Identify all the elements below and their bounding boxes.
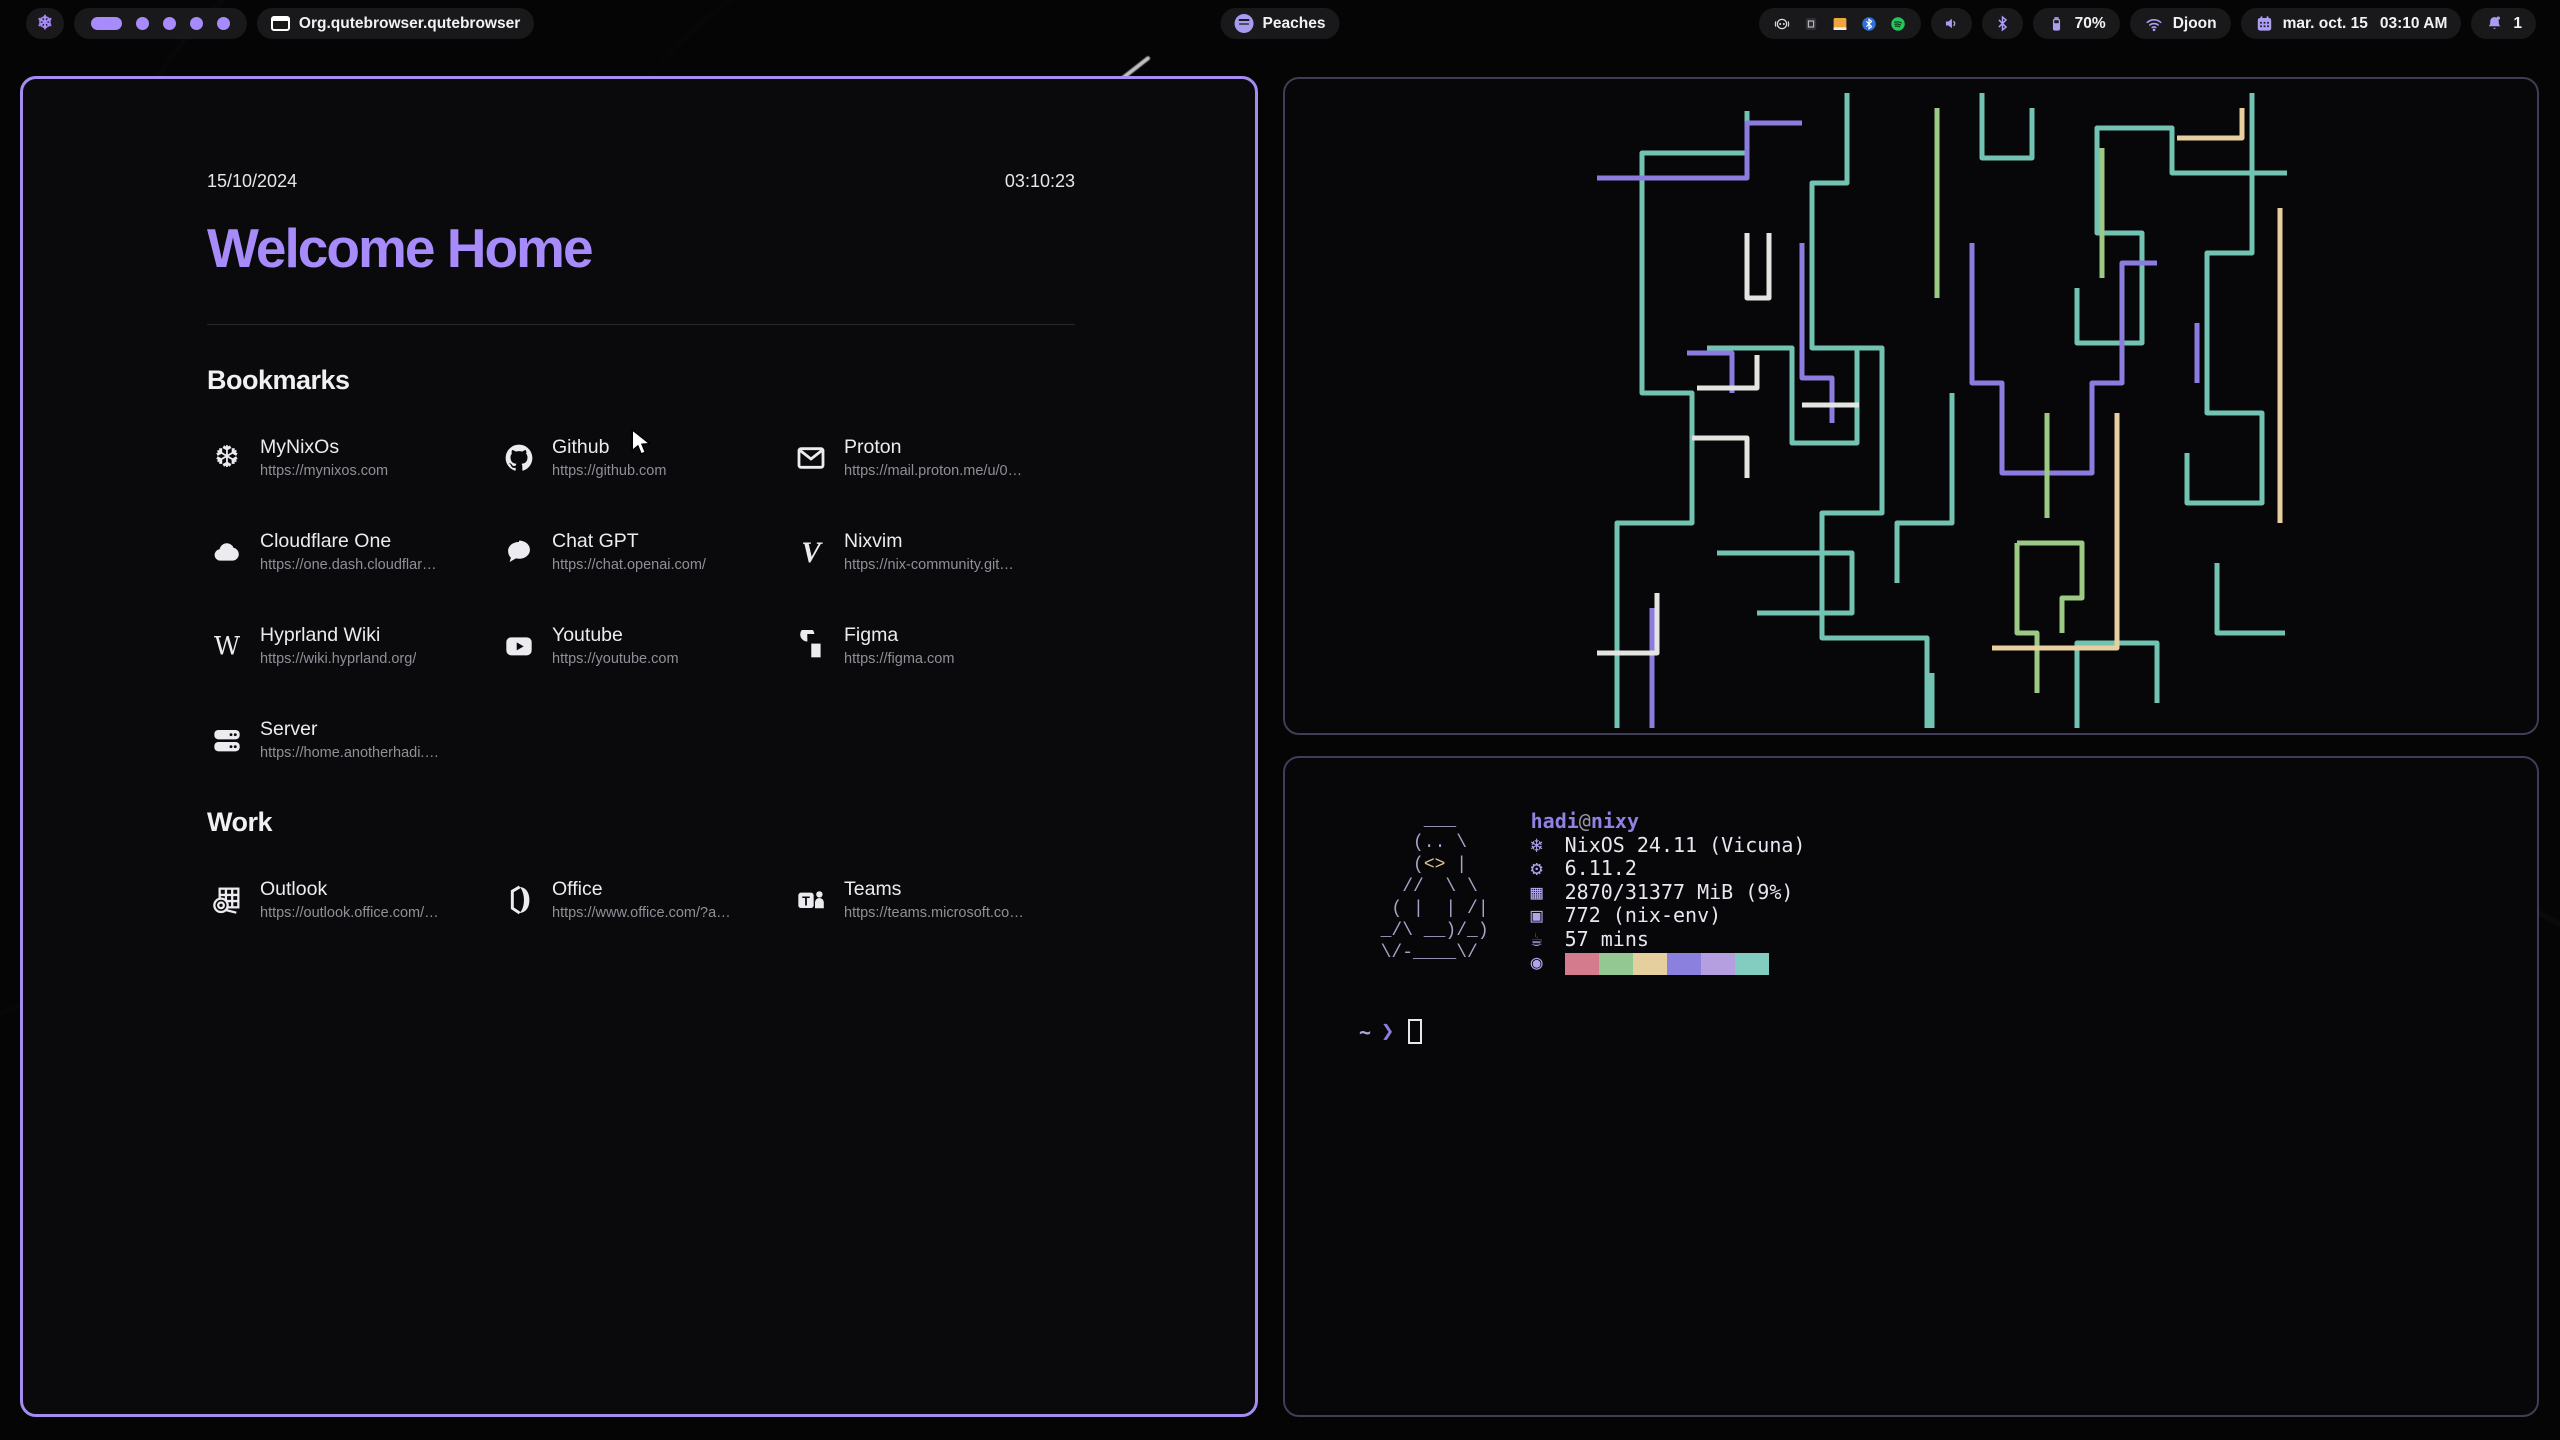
bookmark-title: Hyprland Wiki <box>260 624 416 647</box>
bookmark-url: https://nix-community.git… <box>844 557 1014 573</box>
bookmark-title: Outlook <box>260 878 439 901</box>
spotify-icon <box>1235 14 1254 33</box>
bookmark-title: MyNixOs <box>260 436 388 459</box>
active-window-pill: Org.qutebrowser.qutebrowser <box>257 8 534 39</box>
speaker-icon <box>1942 14 1961 33</box>
bookmark-url: https://one.dash.cloudflar… <box>260 557 437 573</box>
uptime-icon: ☕ <box>1531 928 1565 952</box>
pipe-segment <box>1972 243 2157 473</box>
fetch-info-value: 772 (nix-env) <box>1565 904 1722 928</box>
bookmark-title: Server <box>260 718 439 741</box>
bookmark-item[interactable]: Cloudflare One https://one.dash.cloudfla… <box>207 530 499 573</box>
fetch-info-row: ▣772 (nix-env) <box>1531 904 1806 928</box>
spotify-tray-icon[interactable] <box>1889 15 1907 33</box>
username: hadi <box>1531 809 1579 833</box>
pipe-segment <box>1992 413 2117 648</box>
palette-swatch <box>1633 953 1667 975</box>
bell-icon <box>2485 14 2504 33</box>
bookmark-title: Chat GPT <box>552 530 706 553</box>
volume-pill[interactable] <box>1931 8 1972 39</box>
bookmark-title: Proton <box>844 436 1022 459</box>
palette-swatch <box>1667 953 1701 975</box>
network-ssid: Djoon <box>2173 15 2217 33</box>
notifications-pill[interactable]: 1 <box>2471 8 2536 39</box>
pipe-segment <box>2217 563 2285 633</box>
bookmark-url: https://figma.com <box>844 651 954 667</box>
active-window-title: Org.qutebrowser.qutebrowser <box>299 15 520 33</box>
pipe-segment <box>1717 553 1852 613</box>
pipe-segment <box>1982 93 2032 158</box>
calendar-icon <box>2255 14 2274 33</box>
files-icon[interactable] <box>1831 15 1849 33</box>
nixos-snowflake-icon: ❄ <box>37 12 53 35</box>
pipe-segment <box>1617 111 1747 728</box>
nixos-launcher-button[interactable]: ❄ <box>26 8 64 39</box>
bookmark-item[interactable]: Server https://home.anotherhadi.… <box>207 718 499 761</box>
memory-icon: ▦ <box>1531 881 1565 905</box>
media-player-pill[interactable]: Peaches <box>1221 8 1340 39</box>
pipe-segment <box>2187 93 2262 503</box>
bookmark-url: https://www.office.com/?a… <box>552 905 731 921</box>
bookmark-url: https://teams.microsoft.co… <box>844 905 1024 921</box>
workspace-dot[interactable] <box>217 17 230 30</box>
media-track-label: Peaches <box>1263 15 1326 33</box>
user-host-line: hadi@nixy <box>1531 810 1806 834</box>
section-heading: Work <box>207 807 1075 838</box>
fetch-info-value: 6.11.2 <box>1565 857 1637 881</box>
fastfetch-output: ___ (.. \ (<> | // \ \ ( | | /| _/\ __)/… <box>1359 810 2537 975</box>
bookmark-url: https://github.com <box>552 463 666 479</box>
bookmark-title: Youtube <box>552 624 679 647</box>
bookmark-item[interactable]: Chat GPT https://chat.openai.com/ <box>499 530 791 573</box>
palette-swatch <box>1565 953 1599 975</box>
battery-percent: 70% <box>2075 15 2106 33</box>
bookmark-item[interactable]: Outlook https://outlook.office.com/… <box>207 878 499 921</box>
palette-swatch <box>1599 953 1633 975</box>
outlook-icon <box>207 880 247 920</box>
pipe-segment <box>1747 233 1769 298</box>
workspaces-indicator[interactable] <box>74 8 247 39</box>
clock-time: 03:10 AM <box>2380 15 2447 33</box>
nixos-icon: ❆ <box>207 438 247 478</box>
divider <box>207 324 1075 325</box>
system-tray[interactable] <box>1759 8 1921 39</box>
bookmark-item[interactable]: Youtube https://youtube.com <box>499 624 791 667</box>
at-separator: @ <box>1579 809 1591 833</box>
palette-row: ◉ <box>1531 951 1806 975</box>
shell-prompt[interactable]: ~ ❯ <box>1359 1019 2537 1044</box>
pipe-segment <box>2177 108 2242 138</box>
bookmark-url: https://mynixos.com <box>260 463 388 479</box>
fetch-info-value: NixOS 24.11 (Vicuna) <box>1565 834 1806 858</box>
record-icon[interactable] <box>1773 15 1791 33</box>
window-icon <box>271 16 290 31</box>
palette-icon: ◉ <box>1531 951 1565 975</box>
bookmark-title: Office <box>552 878 731 901</box>
battery-icon <box>2047 14 2066 33</box>
clock-pill[interactable]: mar. oct. 15 03:10 AM <box>2241 8 2462 39</box>
startpage-time: 03:10:23 <box>1005 171 1075 192</box>
top-bar: ❄ Org.qutebrowser.qutebrowser Peaches <box>0 0 2560 47</box>
fetch-info-value: 57 mins <box>1565 928 1649 952</box>
bookmark-url: https://chat.openai.com/ <box>552 557 706 573</box>
pipe-segment <box>1692 438 1747 478</box>
fetch-info-row: ❄NixOS 24.11 (Vicuna) <box>1531 834 1806 858</box>
pipe-segment <box>1597 593 1657 653</box>
fetch-info-row: ▦2870/31377 MiB (9%) <box>1531 881 1806 905</box>
tux-ascii-art: ___ (.. \ (<> | // \ \ ( | | /| _/\ __)/… <box>1359 810 1489 975</box>
bookmark-url: https://home.anotherhadi.… <box>260 745 439 761</box>
workspace-dot[interactable] <box>136 17 149 30</box>
bookmark-title: Github <box>552 436 666 459</box>
bookmark-item[interactable]: Figma https://figma.com <box>791 624 1083 667</box>
clock-date: mar. oct. 15 <box>2283 15 2368 33</box>
bookmark-item[interactable]: W Hyprland Wiki https://wiki.hyprland.or… <box>207 624 499 667</box>
bookmark-url: https://mail.proton.me/u/0… <box>844 463 1022 479</box>
prompt-path: ~ <box>1359 1020 1371 1044</box>
work-section: Work Outlook https://outlook.office.com/… <box>207 807 1075 921</box>
bookmark-title: Figma <box>844 624 954 647</box>
teams-icon: T <box>791 880 831 920</box>
svg-text:T: T <box>802 894 810 908</box>
bookmark-item[interactable]: Github https://github.com <box>499 436 791 479</box>
wikipedia-icon: W <box>207 626 247 666</box>
prompt-chevron-icon: ❯ <box>1381 1019 1394 1044</box>
fetch-info-row: ☕57 mins <box>1531 928 1806 952</box>
page-title: Welcome Home <box>207 216 1075 280</box>
wifi-icon <box>2144 14 2164 34</box>
bookmark-item[interactable]: ❆ MyNixOs https://mynixos.com <box>207 436 499 479</box>
notification-count: 1 <box>2513 15 2522 33</box>
pipe-segment <box>2017 543 2037 693</box>
terminal-cursor <box>1408 1019 1422 1044</box>
bluetooth-pill[interactable] <box>1982 8 2023 39</box>
fetch-terminal-window: ___ (.. \ (<> | // \ \ ( | | /| _/\ __)/… <box>1283 756 2539 1417</box>
work-grid: Outlook https://outlook.office.com/… Off… <box>207 878 1075 921</box>
svg-text:V: V <box>801 537 823 568</box>
mail-icon <box>791 438 831 478</box>
figma-icon <box>791 626 831 666</box>
package-icon: ▣ <box>1531 904 1565 928</box>
startpage-date: 15/10/2024 <box>207 171 297 192</box>
bookmark-title: Cloudflare One <box>260 530 437 553</box>
bluetooth-icon <box>1993 14 2012 33</box>
bookmark-url: https://wiki.hyprland.org/ <box>260 651 416 667</box>
workspace-dot[interactable] <box>163 17 176 30</box>
pipe-segment <box>2017 543 2082 633</box>
bookmark-item[interactable]: T Teams https://teams.microsoft.co… <box>791 878 1083 921</box>
bookmark-item[interactable]: Office https://www.office.com/?a… <box>499 878 791 921</box>
nixvim-icon: V <box>791 532 831 572</box>
workspace-active[interactable] <box>91 17 122 30</box>
bookmark-url: https://youtube.com <box>552 651 679 667</box>
office-icon <box>499 880 539 920</box>
pipe-segment <box>1697 355 1757 388</box>
keepass-icon[interactable] <box>1802 15 1820 33</box>
nixos-icon: ❄ <box>1531 834 1565 858</box>
pipe-segment <box>1802 243 1832 423</box>
section-heading: Bookmarks <box>207 365 1075 396</box>
fetch-info-value: 2870/31377 MiB (9%) <box>1565 881 1794 905</box>
bookmark-url: https://outlook.office.com/… <box>260 905 439 921</box>
qutebrowser-window: 15/10/2024 03:10:23 Welcome Home Bookmar… <box>20 76 1258 1417</box>
hostname: nixy <box>1591 809 1639 833</box>
pipe-segment <box>1897 393 1952 583</box>
pipes-terminal-window <box>1283 77 2539 735</box>
youtube-icon <box>499 626 539 666</box>
palette-swatch <box>1735 953 1769 975</box>
github-icon <box>499 438 539 478</box>
pipe-segment <box>2077 643 2157 728</box>
bookmark-title: Nixvim <box>844 530 1014 553</box>
bookmarks-section: Bookmarks ❆ MyNixOs https://mynixos.com … <box>207 365 1075 761</box>
network-pill[interactable]: Djoon <box>2130 8 2231 39</box>
bluetooth-tray-icon[interactable] <box>1860 15 1878 33</box>
battery-pill[interactable]: 70% <box>2033 8 2120 39</box>
workspace-dot[interactable] <box>190 17 203 30</box>
svg-text:W: W <box>214 630 240 660</box>
server-icon <box>207 720 247 760</box>
palette-swatch <box>1701 953 1735 975</box>
cloud-icon <box>207 532 247 572</box>
fetch-info-row: ⚙6.11.2 <box>1531 857 1806 881</box>
kernel-icon: ⚙ <box>1531 857 1565 881</box>
pipe-segment <box>2077 128 2287 343</box>
bookmarks-grid: ❆ MyNixOs https://mynixos.com Github htt… <box>207 436 1075 761</box>
pipes-art <box>1597 93 2291 733</box>
bookmark-item[interactable]: V Nixvim https://nix-community.git… <box>791 530 1083 573</box>
pipe-segment <box>1812 93 1927 728</box>
chat-icon <box>499 532 539 572</box>
bookmark-item[interactable]: Proton https://mail.proton.me/u/0… <box>791 436 1083 479</box>
bookmark-title: Teams <box>844 878 1024 901</box>
